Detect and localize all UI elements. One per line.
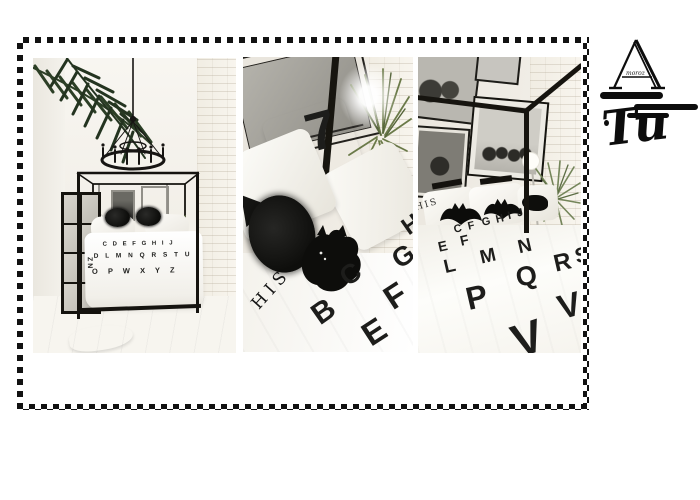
bat-pillow-icon (438, 199, 484, 227)
duvet-letter-row: O P W X Y Z (92, 266, 179, 275)
bed-post (77, 172, 80, 319)
duvet-letter-row: D L M N Q R S T U (94, 252, 192, 260)
bed-post (524, 109, 529, 233)
brand-logo: moroz Tu (596, 38, 700, 178)
alphabet-duvet: C D E F G H I J D L M N Q R S T U O P W … (84, 231, 203, 309)
duvet-letter-row: C D E F G H I J (103, 240, 175, 247)
photo-bed-closeup: 7 HIS B C E F G H (243, 57, 413, 352)
logo-script-text: Tu (599, 98, 671, 154)
logo-sub-text: moroz (626, 70, 646, 77)
bed-post (196, 172, 199, 313)
photo-bed-perspective: HIS C F G H I J E F L M N P Q R S V V (418, 57, 581, 353)
bat-plush-icon (295, 223, 367, 305)
photo-bedroom-wide: C D E F G H I J D L M N Q R S T U O P W … (33, 58, 236, 353)
collage-stage: C D E F G H I J D L M N Q R S T U O P W … (0, 0, 700, 500)
black-fur-pillow (136, 207, 161, 226)
black-fur-pillow (105, 208, 130, 227)
duvet-letter-row: ZN (86, 257, 93, 270)
logo-monogram-a-icon: moroz (602, 38, 674, 92)
